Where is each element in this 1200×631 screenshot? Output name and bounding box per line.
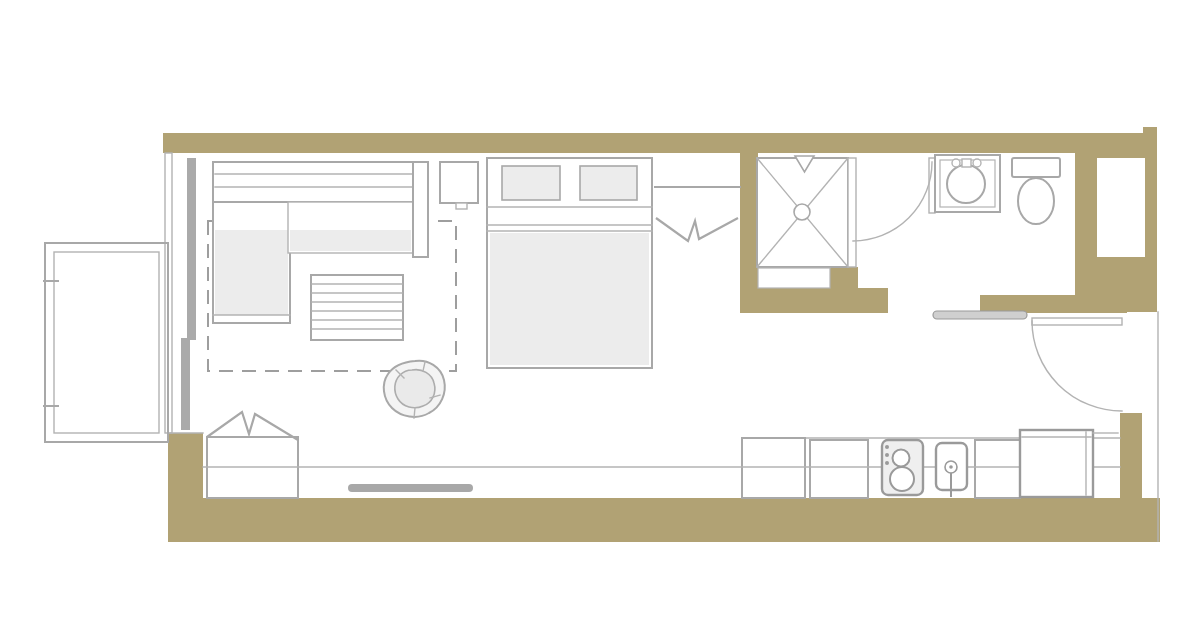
tv xyxy=(348,484,473,492)
sliding-door-panel-inner xyxy=(187,158,196,340)
fridge-body xyxy=(1020,430,1093,497)
cooktop-knob xyxy=(885,461,889,465)
entry-console xyxy=(933,311,1027,319)
wall-shower-left xyxy=(740,153,758,290)
cooktop-knob xyxy=(885,453,889,457)
sink-drain-dot xyxy=(949,465,953,469)
pillow-left xyxy=(502,166,560,200)
floor-plan-drawing xyxy=(0,0,1200,631)
cooktop xyxy=(882,440,923,495)
sink-basin xyxy=(947,165,985,203)
sofa-armrest xyxy=(413,162,428,257)
wall-entry-column xyxy=(1120,413,1142,498)
cooktop-knob xyxy=(885,445,889,449)
faucet-spout xyxy=(962,159,971,167)
sofa-backrest xyxy=(213,162,428,202)
side-table-leg xyxy=(456,203,467,209)
faucet-knob xyxy=(973,159,981,167)
wall-bottom xyxy=(168,498,1160,542)
sofa-chaise-cushion xyxy=(215,230,288,315)
vanity-sink xyxy=(935,155,1000,212)
sofa-seat-cushion xyxy=(290,230,411,251)
base-cabinet-1 xyxy=(742,438,805,498)
kitchen-sink xyxy=(936,443,967,497)
refrigerator xyxy=(1020,430,1093,497)
coffee-table-top xyxy=(311,275,403,340)
burner-small xyxy=(893,450,910,467)
base-cabinet-3 xyxy=(975,440,1020,498)
toilet-bowl xyxy=(1018,178,1054,224)
shower-drain xyxy=(794,204,810,220)
side-table xyxy=(440,162,478,209)
faucet-knob xyxy=(952,159,960,167)
base-cabinet-2 xyxy=(810,440,868,498)
coffee-table xyxy=(311,275,403,340)
wall-bathroom-bottom xyxy=(980,295,1127,313)
wall-shower-bottom xyxy=(740,288,888,313)
side-table-top xyxy=(440,162,478,203)
pillow-right xyxy=(580,166,637,200)
shower-partition xyxy=(848,158,856,267)
toilet-tank xyxy=(1012,158,1060,177)
wall-corner-notch xyxy=(1143,127,1157,135)
entry-door-leaf xyxy=(1032,318,1122,325)
utility-shaft xyxy=(1097,158,1145,257)
double-bed xyxy=(487,158,652,368)
floor-plan-page xyxy=(0,0,1200,631)
wall-shower-step xyxy=(830,267,858,289)
plant-leaf-tick xyxy=(414,408,415,418)
bed-duvet xyxy=(490,233,649,365)
sliding-door-panel-outer xyxy=(181,338,190,430)
potted-plant xyxy=(384,361,445,418)
wall-left-column xyxy=(168,433,203,498)
burner-large xyxy=(890,467,914,491)
wall-top xyxy=(163,133,1157,153)
